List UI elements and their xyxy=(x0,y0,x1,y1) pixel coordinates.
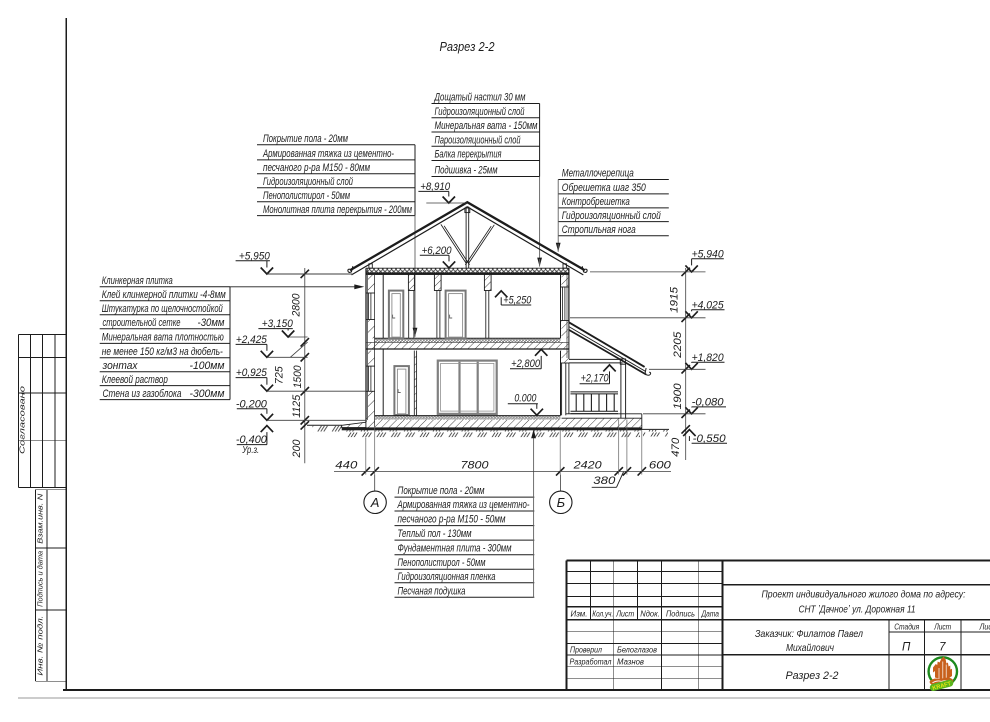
svg-text:А: А xyxy=(370,495,380,510)
svg-text:Обрешетка шаг 350: Обрешетка шаг 350 xyxy=(562,182,646,194)
svg-text:Минеральная вата плотностью: Минеральная вата плотностью xyxy=(102,332,224,344)
svg-text:Стадия: Стадия xyxy=(894,622,920,631)
svg-text:П: П xyxy=(902,642,911,654)
svg-text:СНТ ʼДачноеʼ ул. Дорожная 11: СНТ ʼДачноеʼ ул. Дорожная 11 xyxy=(799,605,916,616)
svg-text:Подпись: Подпись xyxy=(666,610,695,619)
svg-text:470: 470 xyxy=(670,438,682,457)
svg-text:-30мм: -30мм xyxy=(198,317,226,329)
svg-text:строительной сетке: строительной сетке xyxy=(103,317,181,329)
svg-text:Мазнов: Мазнов xyxy=(617,657,644,666)
svg-text:Ур.з.: Ур.з. xyxy=(241,445,259,456)
svg-text:Металлочерепица: Металлочерепица xyxy=(562,168,634,180)
svg-text:2800: 2800 xyxy=(291,293,303,317)
svg-text:Покрытие пола - 20мм: Покрытие пола - 20мм xyxy=(398,485,486,497)
svg-text:380: 380 xyxy=(593,475,615,487)
svg-text:Гидроизоляционный слой: Гидроизоляционный слой xyxy=(562,210,661,222)
svg-text:Подпись и дата: Подпись и дата xyxy=(36,551,45,607)
svg-text:1125: 1125 xyxy=(291,395,303,418)
svg-text:Штукатурка по щелочностойкой: Штукатурка по щелочностойкой xyxy=(102,303,223,315)
svg-text:Б: Б xyxy=(557,495,566,510)
svg-text:Взам.инв. N: Взам.инв. N xyxy=(36,493,45,544)
svg-text:Кол.уч.: Кол.уч. xyxy=(592,610,613,619)
svg-text:Проект индивидуального жилого: Проект индивидуального жилого дома по ад… xyxy=(762,589,966,600)
svg-text:200: 200 xyxy=(291,439,303,458)
svg-text:Подшивка - 25мм: Подшивка - 25мм xyxy=(435,165,499,177)
svg-text:440: 440 xyxy=(335,459,357,471)
svg-text:Контробрешетка: Контробрешетка xyxy=(562,196,630,208)
svg-text:Листов: Листов xyxy=(979,622,990,631)
svg-text:Разработал: Разработал xyxy=(570,657,613,666)
svg-text:Армированная тяжка из цементно: Армированная тяжка из цементно- xyxy=(397,499,530,511)
svg-text:Белоглазов: Белоглазов xyxy=(617,646,657,655)
svg-text:Минеральная вата - 150мм: Минеральная вата - 150мм xyxy=(435,120,539,132)
svg-text:725: 725 xyxy=(273,366,285,384)
svg-text:Лист: Лист xyxy=(615,610,634,619)
svg-text:песчаного р-ра М150 - 80мм: песчаного р-ра М150 - 80мм xyxy=(263,162,371,174)
svg-text:Клей клинкерной плитки -4-8мм: Клей клинкерной плитки -4-8мм xyxy=(102,289,227,301)
svg-text:1900: 1900 xyxy=(672,383,684,409)
svg-text:Согласовано: Согласовано xyxy=(18,386,27,454)
svg-text:Армированная тяжка из цементно: Армированная тяжка из цементно- xyxy=(262,148,394,160)
svg-text:-300мм: -300мм xyxy=(190,388,226,400)
svg-text:Nдок.: Nдок. xyxy=(640,610,660,619)
svg-text:Клинкерная плитка: Клинкерная плитка xyxy=(102,275,173,287)
svg-text:2205: 2205 xyxy=(672,332,684,359)
svg-text:Михайлович: Михайлович xyxy=(786,643,835,654)
svg-text:Гидроизоляционная пленка: Гидроизоляционная пленка xyxy=(398,571,496,583)
svg-text:Разрез 2-2: Разрез 2-2 xyxy=(786,670,839,682)
svg-text:Стена из газоблока: Стена из газоблока xyxy=(103,388,182,400)
svg-text:+2,170: +2,170 xyxy=(581,373,609,385)
svg-text:не менее 150 кг/м3 на дюбель-: не менее 150 кг/м3 на дюбель- xyxy=(102,346,223,358)
svg-text:Клеевой раствор: Клеевой раствор xyxy=(102,374,168,386)
svg-text:Изм.: Изм. xyxy=(571,610,588,619)
svg-text:2420: 2420 xyxy=(572,459,601,471)
svg-text:Пенополистирол - 50мм: Пенополистирол - 50мм xyxy=(398,557,487,569)
svg-text:Гидроизоляционный слой: Гидроизоляционный слой xyxy=(435,106,525,118)
svg-text:Проверил: Проверил xyxy=(570,646,603,655)
svg-text:Фундаментная плита - 300мм: Фундаментная плита - 300мм xyxy=(398,543,513,555)
svg-text:Монолитная плита перекрытия -: Монолитная плита перекрытия - 200мм xyxy=(263,204,413,216)
svg-text:Песчаная подушка: Песчаная подушка xyxy=(398,585,466,597)
svg-text:7: 7 xyxy=(939,642,946,654)
svg-text:Разрез 2-2: Разрез 2-2 xyxy=(440,39,496,54)
svg-text:Пароизоляционный слой: Пароизоляционный слой xyxy=(435,134,521,146)
svg-text:Дощатый настил 30 мм: Дощатый настил 30 мм xyxy=(434,92,526,104)
svg-text:Гидроизоляционный слой: Гидроизоляционный слой xyxy=(263,176,353,188)
svg-text:Покрытие пола - 20мм: Покрытие пола - 20мм xyxy=(263,133,349,145)
svg-text:Лист: Лист xyxy=(933,622,951,631)
svg-text:Инв. № подл.: Инв. № подл. xyxy=(36,616,45,676)
svg-text:Стропильная нога: Стропильная нога xyxy=(562,224,636,236)
svg-text:600: 600 xyxy=(649,459,671,471)
svg-text:Дата: Дата xyxy=(701,610,720,619)
svg-text:0.000: 0.000 xyxy=(514,393,536,405)
svg-text:Теплый пол - 130мм: Теплый пол - 130мм xyxy=(398,528,473,540)
svg-text:7800: 7800 xyxy=(461,459,489,471)
svg-text:Заказчик: Филатов Павел: Заказчик: Филатов Павел xyxy=(755,629,863,640)
svg-text:1915: 1915 xyxy=(669,287,681,313)
svg-text:песчаного р-ра М150 - 50мм: песчаного р-ра М150 - 50мм xyxy=(398,514,507,526)
svg-text:зонтах: зонтах xyxy=(102,360,139,372)
svg-text:Балка перекрытия: Балка перекрытия xyxy=(435,149,502,161)
svg-text:-100мм: -100мм xyxy=(190,360,226,372)
svg-text:Пенополистирол - 50мм: Пенополистирол - 50мм xyxy=(263,190,351,202)
svg-text:1500: 1500 xyxy=(292,365,304,388)
